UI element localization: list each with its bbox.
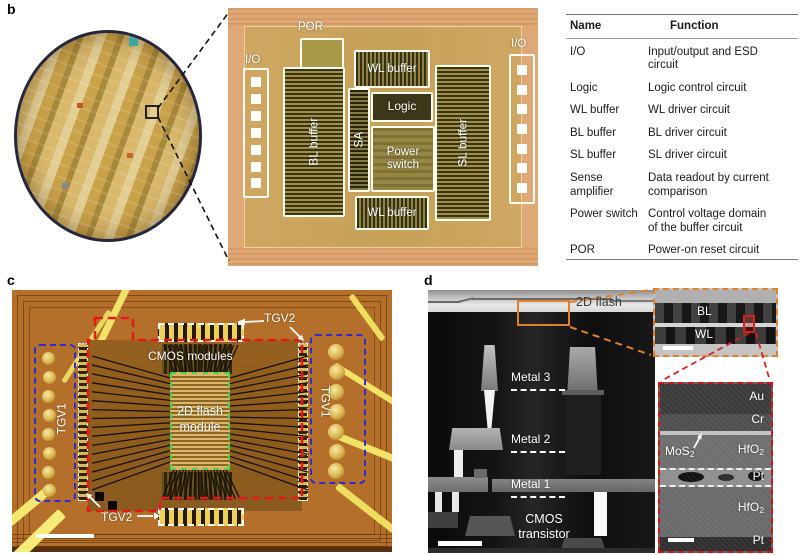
die-label-logic: Logic (388, 100, 417, 113)
io-pad (517, 183, 527, 193)
metal2-dash (511, 451, 565, 453)
panel-c-letter: c (7, 272, 15, 288)
die-label-io-left: I/O (245, 54, 260, 67)
io-pad (251, 145, 261, 155)
die-edge-texture (228, 248, 538, 266)
metal1-label: Metal 1 (511, 478, 550, 491)
table-header-function: Function (648, 20, 778, 34)
table-cell-function: Data readout by current comparison (648, 172, 778, 199)
flash-module-label-line1: 2D flash (170, 404, 230, 418)
io-pad (517, 163, 527, 173)
table-cell-function: WL driver circuit (648, 104, 778, 118)
io-pad (251, 111, 261, 121)
hfo2-upper-label: HfO2 (738, 442, 764, 457)
die-label-sl-buffer: SL buffer (456, 119, 469, 167)
table-cell-function: Control voltage domain of the buffer cir… (648, 208, 778, 235)
metal1-bar (428, 477, 488, 492)
flash-zoom-box (517, 300, 570, 326)
die-region-por (300, 38, 344, 70)
die-label-io-right: I/O (511, 38, 526, 51)
io-pad (251, 94, 261, 104)
chip-micrograph: TGV2 TGV2 TGV1 TGV1 CMOS modules 2D flas… (12, 290, 392, 552)
bl-layer (655, 303, 776, 323)
hfo2-lower-label: HfO2 (738, 500, 764, 515)
metal2-block (449, 428, 503, 450)
cmos-module-block (162, 472, 232, 500)
die-label-por: POR (298, 21, 323, 34)
tgv1-left-label: TGV1 (55, 399, 68, 439)
io-pad (251, 77, 261, 87)
layer-stack-inset: Au Cr HfO2 Pt HfO2 Pt MoS2 (658, 382, 773, 553)
die-label-wl-buffer-top: WL buffer (367, 63, 416, 76)
metal1-dash (511, 496, 565, 498)
panel-b-letter: b (7, 1, 16, 17)
wafer-die-texture (17, 33, 199, 239)
table-row: SL buffer SL driver circuit (570, 149, 798, 163)
cmos-transistor-label-line1: CMOS (498, 512, 590, 526)
wafer-image (14, 30, 202, 242)
wl-layer (655, 327, 776, 344)
table-cell-name: I/O (570, 46, 642, 73)
table-cell-function: BL driver circuit (648, 127, 778, 141)
scale-bar (668, 538, 694, 542)
via (452, 492, 459, 512)
die-region-io-right (509, 54, 535, 204)
io-pad (251, 162, 261, 172)
pillar-shadow (565, 395, 601, 475)
table-row: BL buffer BL driver circuit (570, 127, 798, 141)
table-cell-name: BL buffer (570, 127, 642, 141)
table-cell-name: SL buffer (570, 149, 642, 163)
table-row: WL buffer WL driver circuit (570, 104, 798, 118)
wafer-mark (127, 153, 133, 158)
die-micrograph: POR I/O BL buffer SA WL buffer Logic Pow… (228, 8, 538, 266)
wafer-mark (77, 103, 83, 108)
metal3-label: Metal 3 (511, 371, 550, 384)
table-cell-function: SL driver circuit (648, 149, 778, 163)
die-label-power-switch: Power switch (380, 146, 426, 172)
io-pad (251, 178, 261, 188)
wafer-mark (62, 183, 68, 188)
bl-label: BL (697, 305, 712, 318)
die-edge-texture (228, 8, 538, 26)
figure: b POR I/O BL buffer SA WL buf (0, 0, 800, 555)
die-label-wl-buffer-bottom: WL buffer (367, 207, 416, 220)
die-region-wl-buffer-bottom: WL buffer (355, 196, 429, 230)
table-row: I/O Input/output and ESD circuit (570, 46, 798, 73)
via (594, 492, 607, 536)
table-row: Logic Logic control circuit (570, 82, 798, 96)
table-cell-name: WL buffer (570, 104, 642, 118)
table-row: POR Power-on reset circuit (570, 244, 798, 258)
die-region-bl-buffer: BL buffer (283, 67, 345, 217)
alignment-mark (95, 492, 104, 501)
io-pad (517, 104, 527, 114)
substrate (428, 548, 655, 553)
die-region-power-switch: Power switch (371, 126, 435, 192)
cr-label: Cr (751, 412, 764, 426)
stack-zoom-box (743, 315, 755, 333)
scale-bar (438, 541, 482, 546)
au-label: Au (749, 389, 764, 403)
table-cell-name: POR (570, 244, 642, 258)
tem-cross-section: 2D flash Metal 3 Metal 2 Metal 1 CMOS tr… (428, 290, 655, 553)
cmos-modules-label: CMOS modules (148, 350, 233, 363)
table-cell-name: Sense amplifier (570, 172, 642, 199)
io-pad (517, 65, 527, 75)
metal3-dash (511, 389, 565, 391)
tgv2-pad-row-top (158, 323, 244, 342)
grain-texture (660, 384, 771, 551)
membrane-line (428, 301, 460, 303)
die-label-sa: SA (352, 132, 365, 148)
pad-strip-left (78, 343, 88, 501)
die-label-bl-buffer: BL buffer (307, 118, 320, 166)
flash-layer-label: 2D flash (576, 295, 622, 309)
metal2-label: Metal 2 (511, 433, 550, 446)
table-cell-function: Power-on reset circuit (648, 244, 778, 258)
die-region-sl-buffer: SL buffer (435, 65, 491, 221)
io-pad (517, 124, 527, 134)
die-region-sense-amplifier: SA (348, 88, 370, 192)
tgv2-bottom-label: TGV2 (101, 511, 132, 524)
function-table: Name Function I/O Input/output and ESD c… (566, 14, 798, 260)
io-pad (517, 85, 527, 95)
io-pad (517, 144, 527, 154)
via (435, 492, 442, 512)
transistor-gate (428, 512, 458, 528)
scale-bar (36, 534, 94, 538)
wafer-mark (129, 37, 138, 46)
wafer-mark (151, 229, 160, 238)
table-header-row: Name Function (566, 15, 798, 39)
die-region-logic: Logic (371, 92, 433, 122)
blwl-inset: BL WL (653, 288, 778, 357)
die-region-wl-buffer-top: WL buffer (354, 50, 430, 88)
table-header-name: Name (570, 20, 642, 34)
table-cell-function: Logic control circuit (648, 82, 778, 96)
pt-mid-label: Pt (753, 469, 764, 483)
io-pad (251, 128, 261, 138)
panel-d-letter: d (424, 272, 433, 288)
table-cell-function: Input/output and ESD circuit (648, 46, 778, 73)
pad-strip-right (298, 343, 308, 501)
pt-bottom-label: Pt (753, 533, 764, 547)
wl-label: WL (695, 328, 713, 341)
via (454, 450, 463, 480)
table-cell-name: Power switch (570, 208, 642, 235)
metal3-pillar (566, 347, 599, 392)
table-cell-name: Logic (570, 82, 642, 96)
scale-bar (663, 346, 693, 350)
table-row: Power switch Control voltage domain of t… (570, 208, 798, 235)
chip-bottom-edge (12, 547, 392, 552)
mos2-label: MoS2 (665, 445, 694, 460)
metal1-bar (474, 469, 487, 478)
inset-band (655, 290, 776, 303)
die-region-io-left (243, 68, 269, 198)
cmos-transistor-label-line2: transistor (498, 527, 590, 541)
tgv2-pad-row-bottom (158, 508, 244, 526)
alignment-mark (108, 501, 117, 510)
flash-module-label-line2: module (170, 420, 230, 434)
table-row: Sense amplifier Data readout by current … (570, 172, 798, 199)
tgv2-top-label: TGV2 (264, 312, 295, 325)
tgv1-right-label: TGV1 (318, 382, 331, 422)
